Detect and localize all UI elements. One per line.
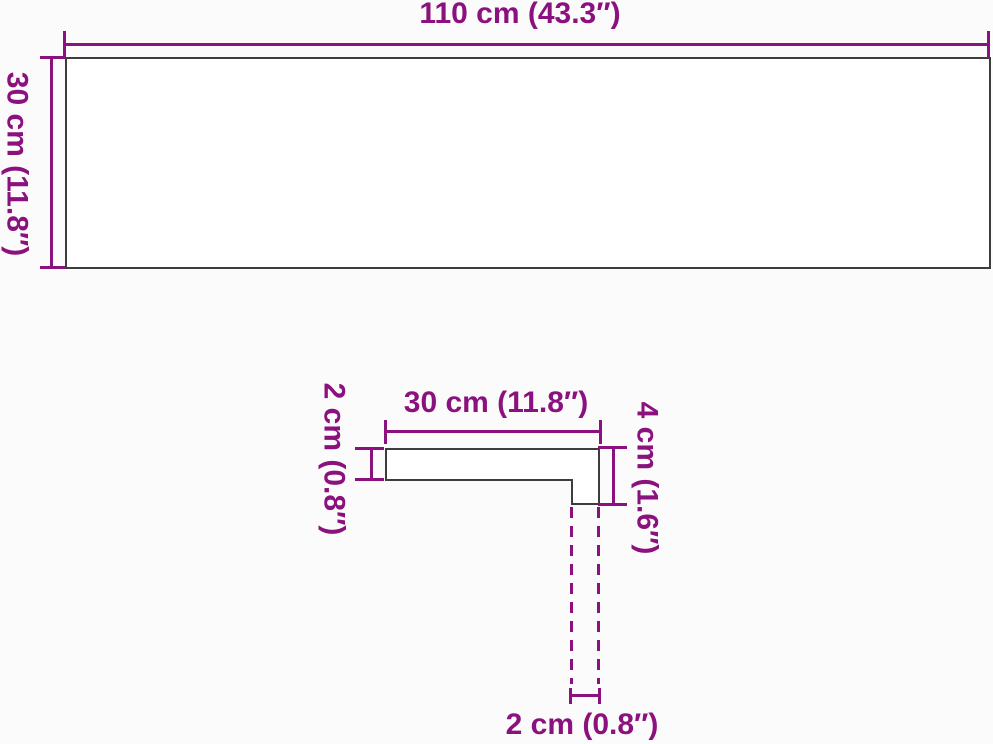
profile-right-height-tick-bottom xyxy=(598,503,627,506)
profile-outline xyxy=(386,449,599,504)
board-width-dim-line xyxy=(65,43,990,46)
board-width-label: 110 cm (43.3″) xyxy=(419,0,620,31)
board-height-dim-tick-top xyxy=(40,56,66,59)
profile-left-thickness-label: 2 cm (0.8″) xyxy=(316,383,351,536)
profile-width-label: 30 cm (11.8″) xyxy=(404,386,588,421)
profile-left-thickness-tick-bottom xyxy=(355,478,384,481)
profile-right-height-label: 4 cm (1.6″) xyxy=(629,402,664,555)
profile-bottom-thickness-dim-line xyxy=(570,694,601,697)
profile-bottom-thickness-label: 2 cm (0.8″) xyxy=(506,708,659,743)
profile-left-thickness-dim-line xyxy=(370,448,373,481)
board-height-dim-tick-bottom xyxy=(40,266,66,269)
profile-right-height-tick-top xyxy=(598,446,627,449)
panel-shapes xyxy=(0,0,993,744)
profile-bottom-thickness-tick-left xyxy=(569,688,572,704)
profile-width-dim-tick-right xyxy=(599,420,602,444)
profile-width-dim-line xyxy=(385,430,602,433)
profile-bottom-thickness-tick-right xyxy=(598,688,601,704)
profile-left-thickness-tick-top xyxy=(355,447,384,450)
dimension-diagram: 110 cm (43.3″) 30 cm (11.8″) 30 cm (11.8… xyxy=(0,0,993,744)
profile-right-height-dim-line xyxy=(612,447,615,506)
profile-width-dim-tick-left xyxy=(384,420,387,444)
profile-extension-dashed-line-left xyxy=(570,507,573,684)
board-width-dim-tick-left xyxy=(63,31,66,58)
board-height-label: 30 cm (11.8″) xyxy=(0,72,33,256)
profile-extension-dashed-line-right xyxy=(597,507,600,684)
board-height-dim-line xyxy=(50,57,53,268)
board-outline xyxy=(66,58,990,268)
board-width-dim-tick-right xyxy=(987,31,990,58)
